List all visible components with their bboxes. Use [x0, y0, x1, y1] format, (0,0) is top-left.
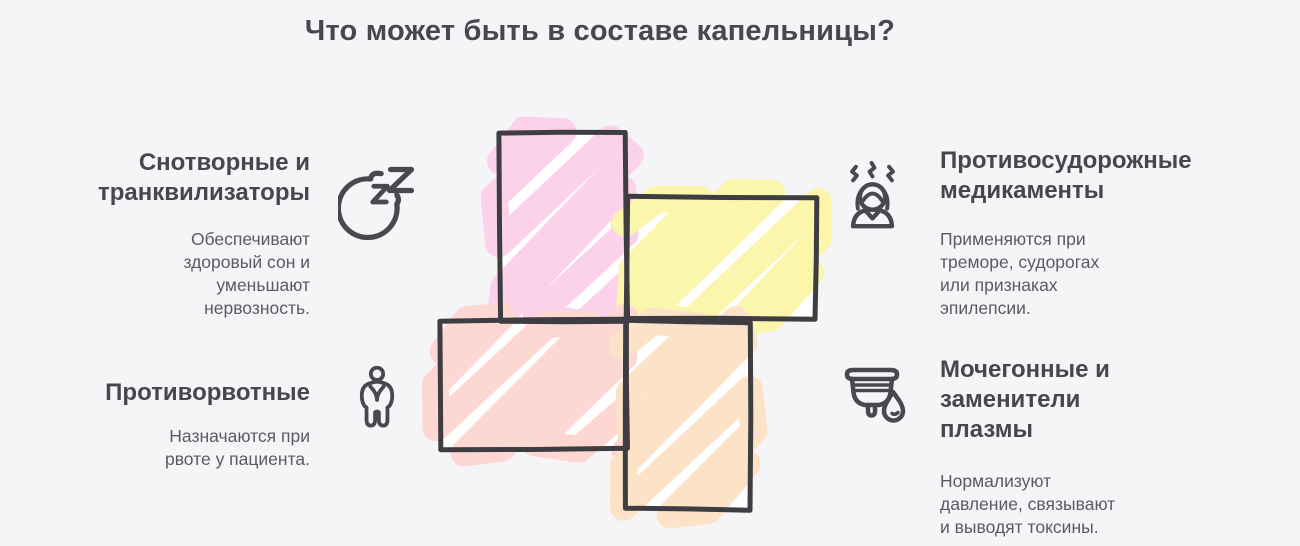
- section-body-sedatives: Обеспечивают здоровый сон и уменьшают не…: [110, 228, 310, 320]
- infographic-canvas: Что может быть в составе капельницы? Сно…: [0, 0, 1300, 546]
- nausea-person-icon: [358, 366, 396, 432]
- tremor-person-icon: [846, 158, 900, 234]
- section-heading-diuretics: Мочегонные и заменители плазмы: [940, 355, 1190, 445]
- section-heading-anticonvulsants: Противосудорожные медикаменты: [940, 146, 1250, 206]
- section-body-anticonvulsants: Применяются при треморе, судорогах или п…: [940, 228, 1170, 320]
- section-heading-sedatives: Снотворные и транквилизаторы: [40, 148, 310, 208]
- moon-zzz-icon: [338, 158, 420, 246]
- page-title: Что может быть в составе капельницы?: [0, 15, 1200, 48]
- section-body-antiemetics: Назначаются при рвоте у пациента.: [110, 425, 310, 471]
- cup-droplet-icon: [840, 362, 912, 428]
- section-heading-antiemetics: Противорвотные: [40, 378, 310, 408]
- section-body-diuretics: Нормализуют давление, связывают и выводя…: [940, 470, 1180, 539]
